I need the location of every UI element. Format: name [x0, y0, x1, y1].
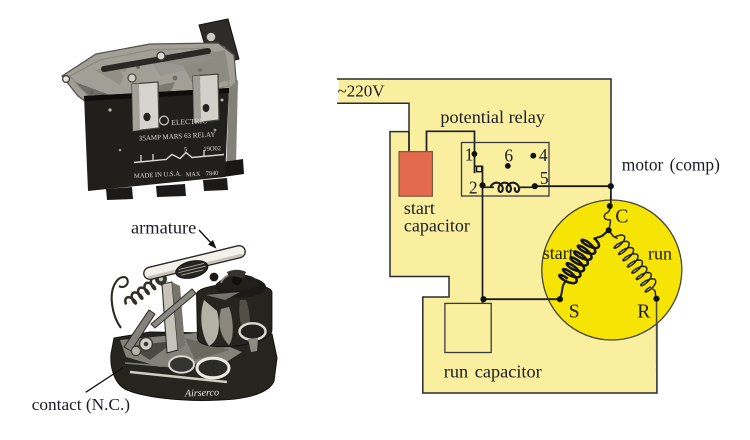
svg-text:armature: armature	[131, 217, 196, 237]
svg-text:start: start	[543, 243, 574, 263]
svg-text:contact (N.C.): contact (N.C.)	[32, 395, 130, 414]
svg-text:motor (comp): motor (comp)	[622, 155, 720, 175]
svg-text:run: run	[648, 244, 672, 264]
svg-text:S: S	[569, 301, 580, 322]
svg-text:1: 1	[465, 144, 474, 164]
svg-text:7840: 7840	[206, 170, 219, 178]
svg-text:run capacitor: run capacitor	[444, 361, 542, 381]
svg-text:potential relay: potential relay	[440, 107, 545, 127]
svg-text:capacitor: capacitor	[404, 216, 470, 236]
svg-text:C: C	[615, 207, 628, 228]
svg-text:R: R	[637, 301, 650, 322]
svg-text:Airserco: Airserco	[184, 387, 219, 399]
svg-text:2: 2	[469, 178, 478, 198]
svg-text:19O02: 19O02	[203, 145, 221, 153]
svg-text:6: 6	[504, 145, 513, 165]
svg-text:4: 4	[539, 145, 548, 165]
svg-text:ELECTRIC: ELECTRIC	[171, 116, 207, 127]
svg-text:~220V: ~220V	[338, 82, 386, 101]
svg-text:MAX: MAX	[186, 171, 201, 179]
svg-text:5: 5	[540, 168, 549, 188]
